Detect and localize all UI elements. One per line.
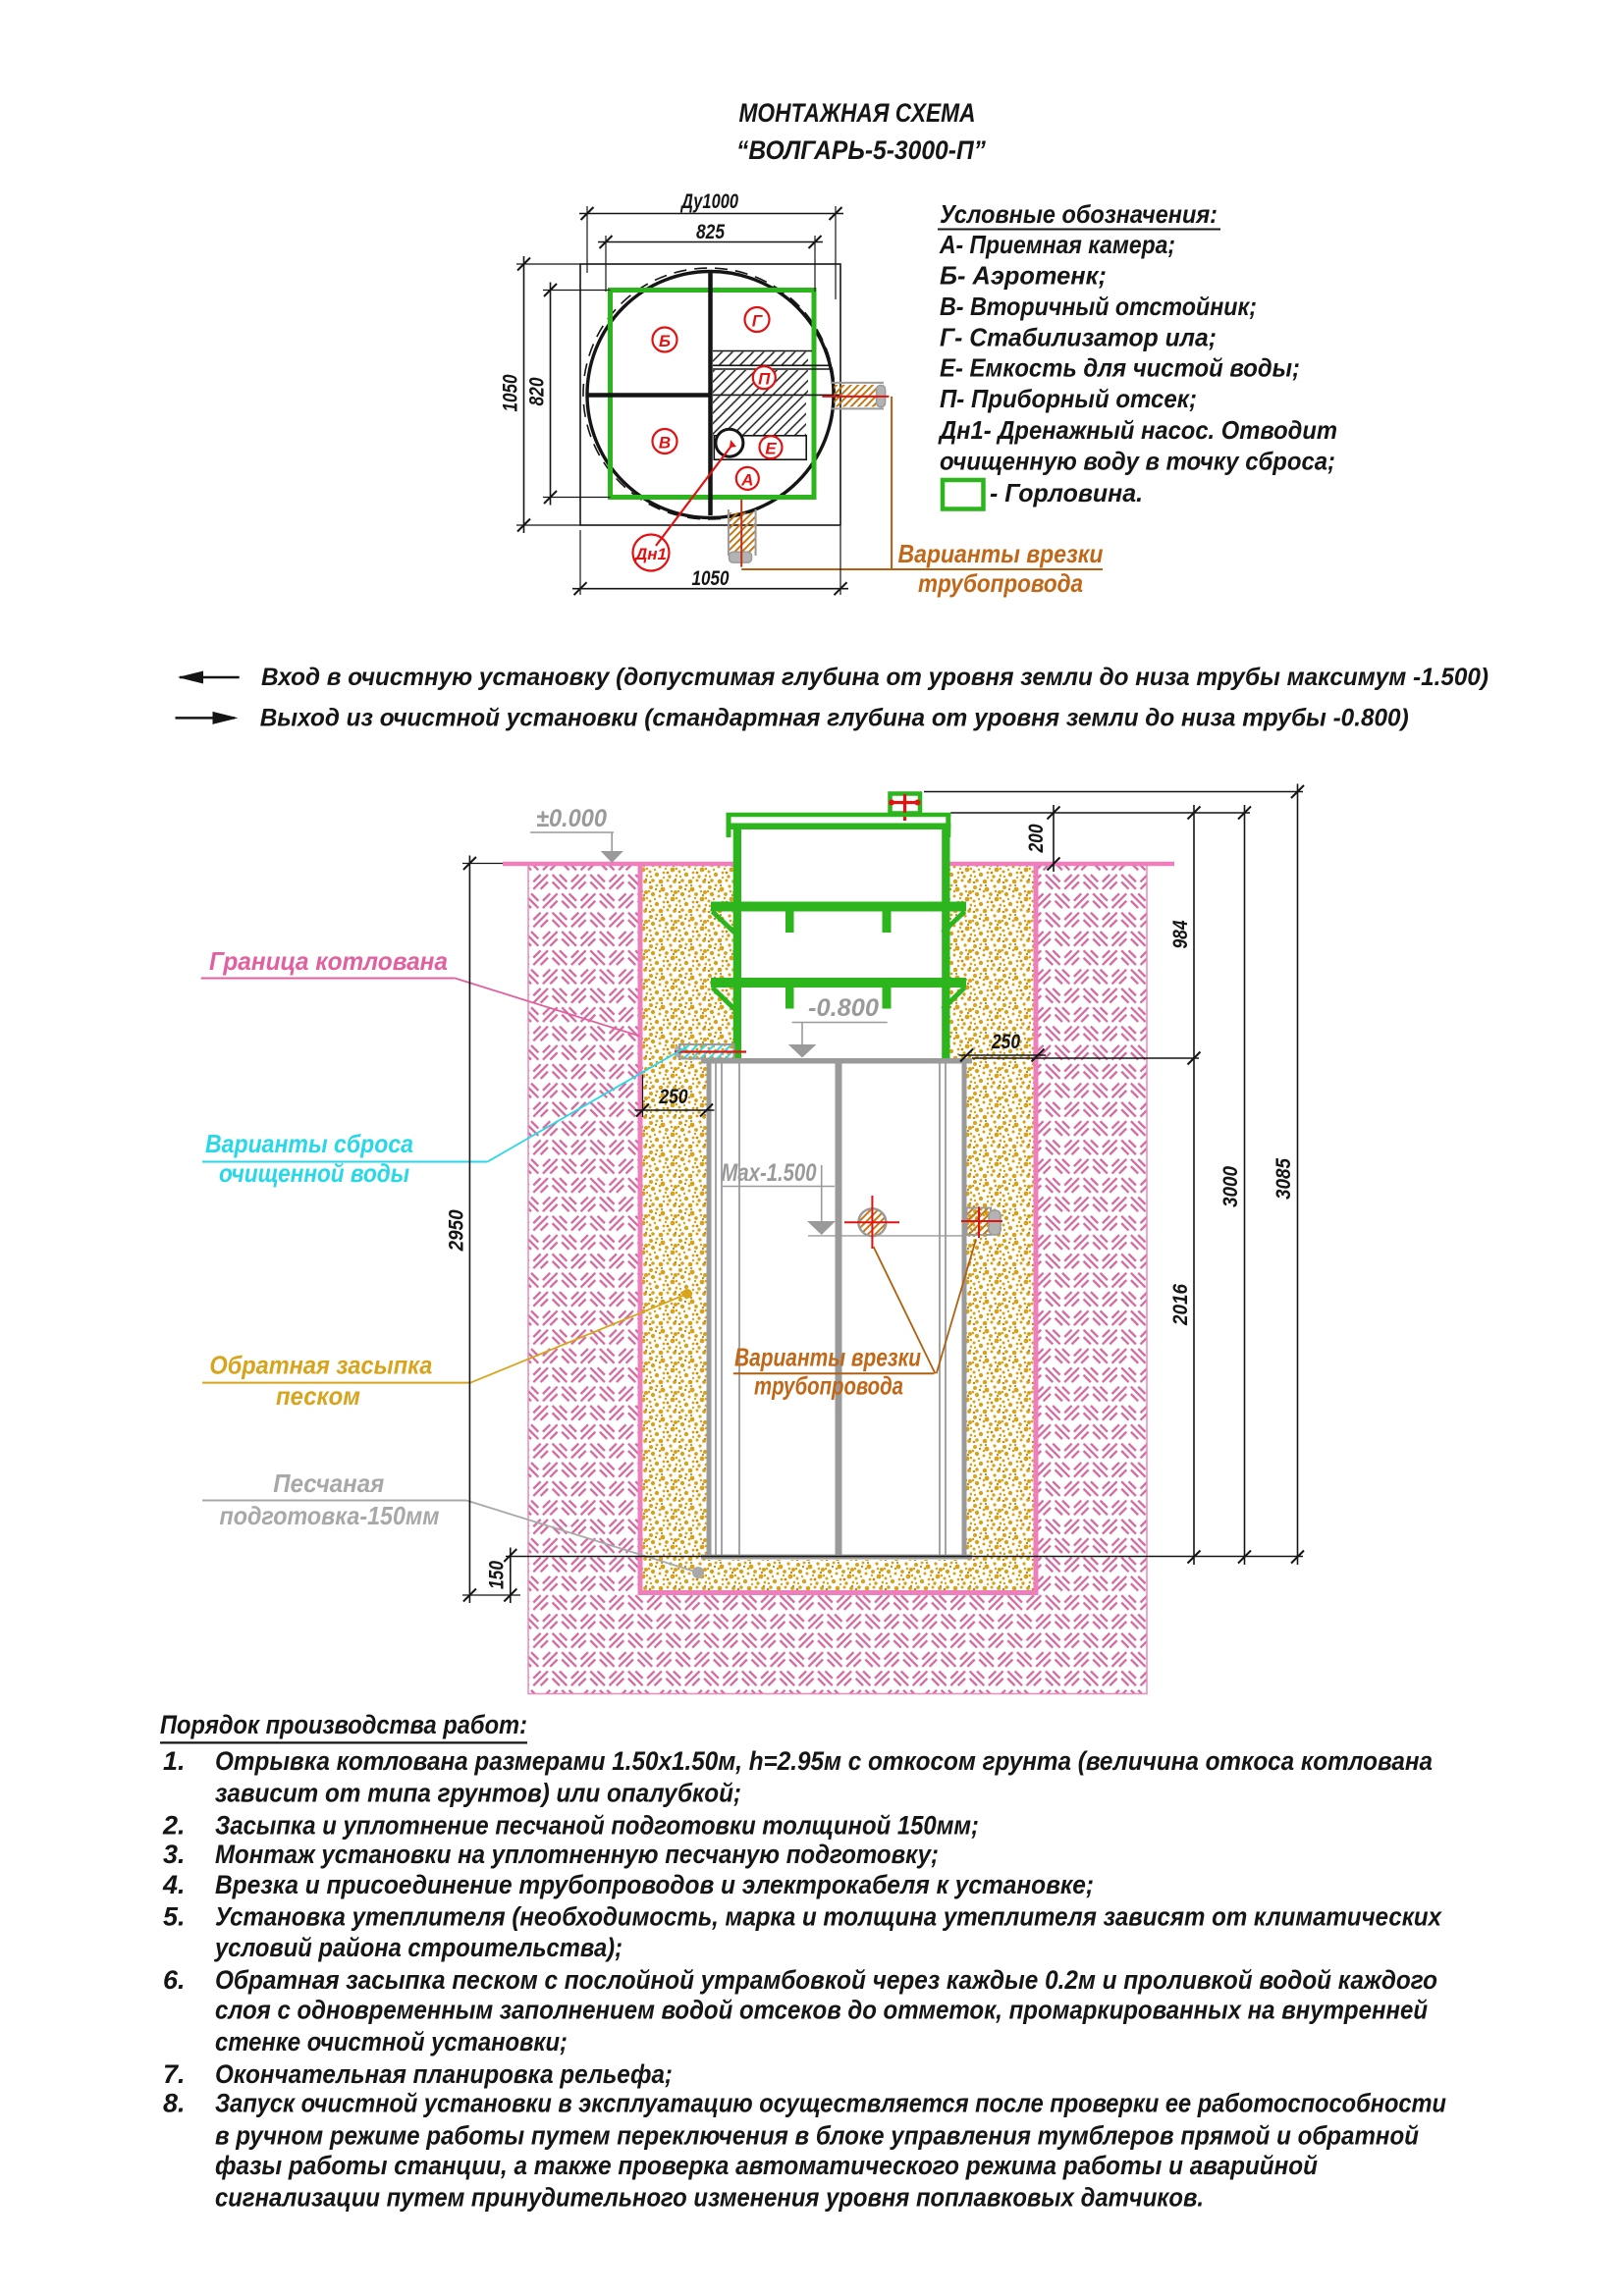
svg-text:условий района строительства);: условий района строительства);	[213, 1933, 623, 1962]
svg-text:песком: песком	[276, 1381, 360, 1411]
svg-text:820: 820	[526, 377, 549, 405]
svg-text:Граница котлована: Граница котлована	[209, 946, 448, 976]
svg-text:В: В	[659, 434, 671, 453]
svg-text:7.: 7.	[163, 2059, 186, 2089]
svg-text:Отрывка котлована размерами 1.: Отрывка котлована размерами 1.50х1.50м, …	[215, 1746, 1433, 1776]
svg-text:зависит от типа грунтов) или о: зависит от типа грунтов) или опалубкой;	[215, 1779, 741, 1808]
svg-text:трубопровода: трубопровода	[918, 568, 1083, 598]
svg-text:“ВОЛГАРЬ-5-3000-П”: “ВОЛГАРЬ-5-3000-П”	[736, 135, 986, 165]
svg-text:200: 200	[1025, 824, 1048, 853]
svg-text:подготовка-150мм: подготовка-150мм	[220, 1501, 440, 1530]
svg-text:3000: 3000	[1219, 1166, 1242, 1207]
svg-text:3.: 3.	[163, 1840, 186, 1869]
svg-text:1.: 1.	[163, 1746, 186, 1776]
svg-text:Выход из очистной установки (с: Выход из очистной установки (стандартная…	[260, 704, 1409, 731]
svg-text:Дн1: Дн1	[633, 545, 667, 563]
svg-text:Порядок производства работ:: Порядок производства работ:	[160, 1710, 527, 1739]
svg-text:А: А	[740, 470, 753, 489]
svg-text:А- Приемная камера;: А- Приемная камера;	[939, 230, 1175, 259]
svg-text:Варианты сброса: Варианты сброса	[205, 1129, 413, 1158]
svg-text:Е: Е	[765, 440, 777, 458]
svg-text:825: 825	[696, 221, 725, 243]
svg-text:Окончательная планировка релье: Окончательная планировка рельефа;	[215, 2059, 673, 2089]
svg-text:±0.000: ±0.000	[536, 805, 607, 832]
svg-text:2016: 2016	[1169, 1284, 1192, 1326]
svg-text:фазы работы станции, а также п: фазы работы станции, а также проверка ав…	[215, 2151, 1318, 2180]
svg-text:Монтаж установки на уплотненну: Монтаж установки на уплотненную песчаную…	[215, 1840, 939, 1869]
svg-text:Засыпка и уплотнение песчаной: Засыпка и уплотнение песчаной подготовки…	[215, 1810, 979, 1840]
svg-text:150: 150	[486, 1561, 509, 1589]
svg-text:Обратная засыпка: Обратная засыпка	[209, 1351, 432, 1380]
svg-text:Е- Емкость для чистой воды;: Е- Емкость для чистой воды;	[940, 353, 1300, 383]
svg-text:2.: 2.	[162, 1810, 186, 1840]
svg-text:в ручном режиме работы путем п: в ручном режиме работы путем переключени…	[215, 2120, 1419, 2150]
svg-text:Врезка и присоединение трубопр: Врезка и присоединение трубопроводов и э…	[215, 1870, 1094, 1899]
svg-text:-0.800: -0.800	[808, 994, 879, 1022]
svg-text:очищенную воду в точку сброса;: очищенную воду в точку сброса;	[940, 447, 1335, 476]
svg-text:Варианты врезки: Варианты врезки	[734, 1343, 921, 1372]
svg-text:Б: Б	[659, 332, 671, 350]
svg-text:1050: 1050	[500, 374, 522, 411]
svg-text:П: П	[758, 370, 771, 389]
svg-text:В- Вторичный отстойник;: В- Вторичный отстойник;	[940, 292, 1257, 321]
svg-text:2950: 2950	[446, 1209, 468, 1252]
svg-text:8.: 8.	[163, 2089, 186, 2118]
svg-text:250: 250	[991, 1031, 1020, 1053]
svg-text:Песчаная: Песчаная	[273, 1468, 384, 1498]
svg-text:П- Приборный отсек;: П- Приборный отсек;	[940, 384, 1197, 413]
svg-text:3085: 3085	[1272, 1158, 1295, 1200]
svg-text:6.: 6.	[163, 1965, 186, 1995]
svg-text:Ду1000: Ду1000	[679, 190, 738, 213]
svg-text:5.: 5.	[163, 1902, 186, 1932]
svg-text:Установка утеплителя (необходи: Установка утеплителя (необходимость, мар…	[215, 1902, 1442, 1932]
svg-text:Обратная засыпка песком с посл: Обратная засыпка песком с послойной утра…	[215, 1965, 1437, 1995]
svg-text:Дн1- Дренажный насос. Отводит: Дн1- Дренажный насос. Отводит	[938, 415, 1337, 445]
svg-text:Б- Аэротенк;: Б- Аэротенк;	[940, 261, 1107, 291]
svg-text:Г: Г	[752, 312, 764, 331]
svg-text:Max-1.500: Max-1.500	[722, 1159, 817, 1187]
svg-text:Варианты врезки: Варианты врезки	[898, 539, 1104, 568]
svg-text:стенке очистной установки;: стенке очистной установки;	[215, 2027, 568, 2056]
svg-text:МОНТАЖНАЯ СХЕМА: МОНТАЖНАЯ СХЕМА	[739, 98, 976, 128]
svg-text:Запуск очистной установки в эк: Запуск очистной установки в эксплуатацию…	[215, 2089, 1446, 2118]
svg-text:250: 250	[659, 1086, 688, 1108]
svg-text:1050: 1050	[692, 567, 730, 590]
svg-text:сигнализации путем принудитель: сигнализации путем принудительного измен…	[215, 2183, 1204, 2213]
svg-text:Г- Стабилизатор ила;: Г- Стабилизатор ила;	[940, 323, 1217, 352]
svg-text:Вход в очистную установку (доп: Вход в очистную установку (допустимая гл…	[261, 664, 1489, 691]
svg-text:трубопровода: трубопровода	[754, 1371, 903, 1401]
svg-text:4.: 4.	[162, 1870, 186, 1899]
svg-text:- Горловина.: - Горловина.	[990, 478, 1143, 507]
svg-text:Условные обозначения:: Условные обозначения:	[940, 199, 1218, 229]
svg-text:слоя с одновременным заполнени: слоя с одновременным заполнением водой о…	[215, 1996, 1428, 2025]
svg-text:984: 984	[1169, 920, 1192, 948]
